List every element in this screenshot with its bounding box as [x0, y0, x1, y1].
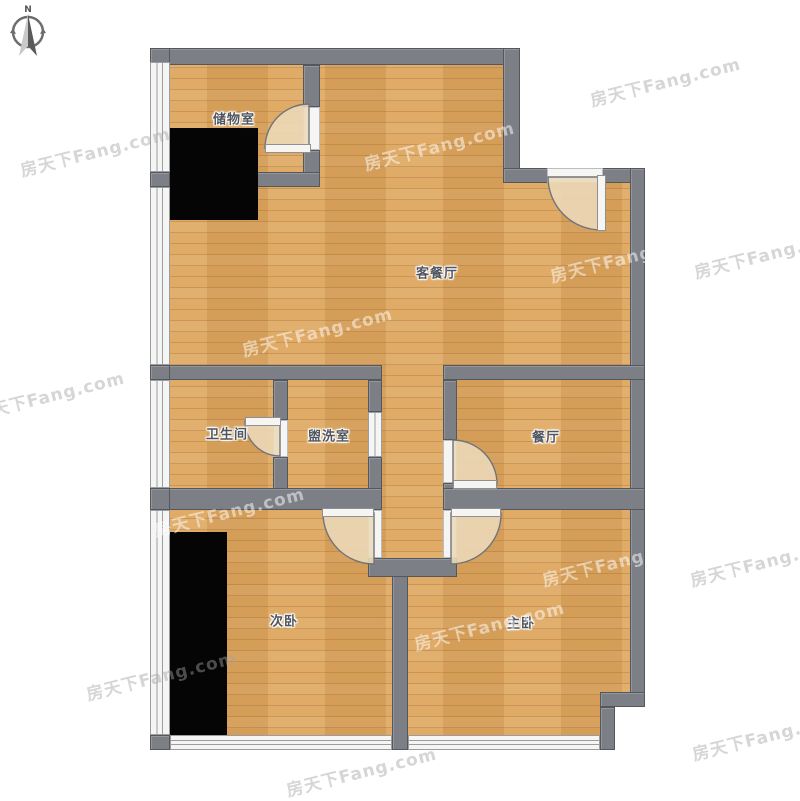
master-bedroom-door-leaf [451, 508, 501, 517]
room-label-living-dining: 客餐厅 [416, 263, 458, 282]
storage-door-leaf [265, 144, 311, 153]
wall-right-step [600, 692, 645, 707]
compass-north-icon: N [6, 2, 54, 64]
wall-bedroom-divider [392, 558, 408, 750]
wall-corridor-right-upper [443, 380, 457, 440]
watermark-text: 房天下Fang.com [0, 364, 127, 426]
wall-right-upper [630, 168, 645, 707]
wall-corner-bottom-left [150, 735, 170, 750]
wall-left-seg-2 [150, 365, 170, 380]
room-label-storage: 储物室 [213, 109, 255, 128]
room-label-washroom: 盥洗室 [308, 426, 350, 445]
washroom-sliding-door [368, 412, 382, 457]
room-label-master-bedroom: 主卧 [507, 613, 535, 632]
exterior-notch-top-right [520, 48, 645, 168]
left-window-3 [150, 380, 170, 488]
room-label-bathroom: 卫生间 [206, 424, 248, 443]
compass-n-label: N [24, 5, 32, 15]
entrance-door-leaf [597, 175, 606, 231]
dining-door-opening [443, 440, 457, 483]
wall-hall-stub [368, 558, 457, 577]
wall-top [150, 48, 520, 65]
wall-top-right-vertical [503, 48, 520, 183]
bathroom-door-leaf [245, 417, 281, 426]
left-window-1 [150, 62, 170, 172]
wall-bath-divider-upper [273, 380, 288, 420]
wall-mid-left [150, 365, 382, 380]
secondary-bedroom-wardrobe [170, 532, 227, 735]
secondary-bedroom-door-opening [368, 510, 382, 558]
storage-wardrobe [170, 128, 258, 220]
entrance-door-opening [547, 168, 603, 183]
wall-left-seg-1 [150, 172, 170, 187]
room-label-secondary-bedroom: 次卧 [270, 611, 298, 630]
watermark-text: 房天下Fang.com [687, 530, 800, 592]
left-window-2 [150, 187, 170, 365]
wall-dining-top [443, 365, 645, 380]
wall-storage-right-upper [303, 65, 320, 107]
floor-plan: N [0, 0, 800, 800]
secondary-bedroom-door-leaf [322, 508, 374, 517]
wall-right-lower [600, 707, 615, 750]
wall-corridor-left-upper [368, 380, 382, 412]
secondary-bedroom-bottom-window [170, 735, 392, 750]
wall-left-seg-3 [150, 488, 170, 510]
watermark-text: 房天下Fang.com [689, 704, 800, 766]
exterior-notch-bottom-right [615, 707, 645, 750]
wall-band-bottom-left [150, 488, 382, 510]
room-label-dining: 餐厅 [532, 427, 560, 446]
left-window-4 [150, 510, 170, 735]
wall-band-bottom-right [443, 488, 645, 510]
dining-door-leaf [453, 480, 497, 489]
master-bedroom-bottom-window [408, 735, 600, 750]
watermark-text: 房天下Fang.com [691, 222, 800, 284]
master-bedroom-door-opening [443, 510, 457, 558]
